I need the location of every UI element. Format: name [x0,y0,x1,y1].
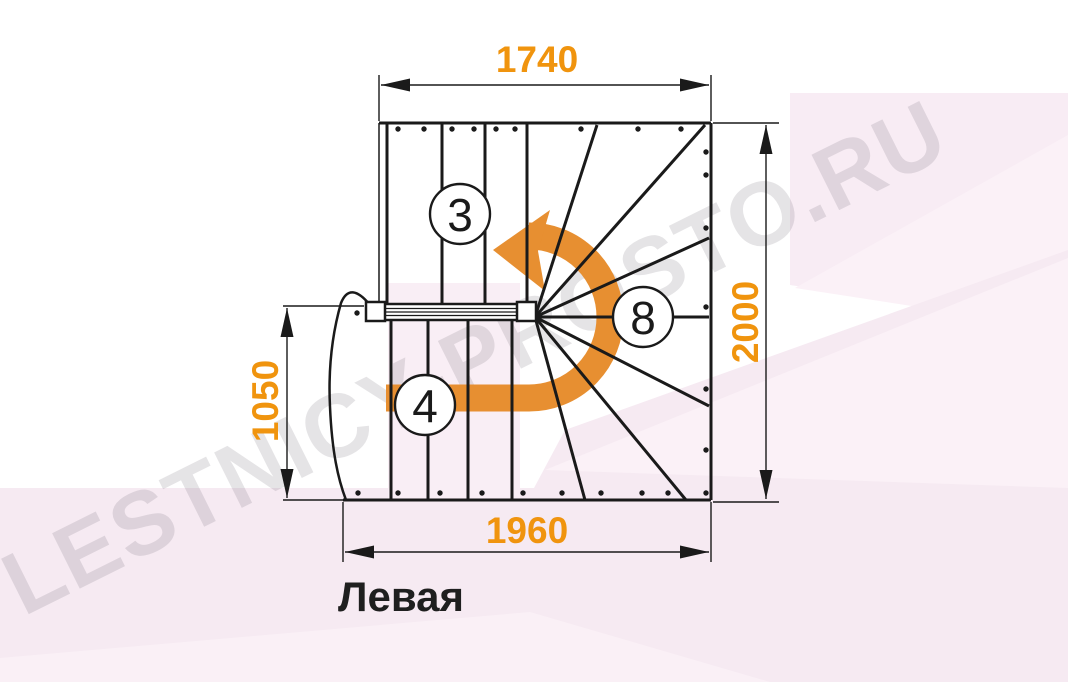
dimension-bottom-value: 1960 [486,510,568,552]
plan-variant-title: Левая [338,573,464,621]
curved-stringer-line [330,292,370,500]
dimension-top-value: 1740 [496,39,578,81]
lower-flight-step-count: 4 [412,379,438,433]
landing-tread [366,302,536,321]
dimension-right-value: 2000 [725,281,767,363]
stair-plan-drawing [0,0,1068,682]
stair-plan-diagram: LESTNICY-PROSTO.RU [0,0,1068,682]
landing-post-left [366,302,385,321]
upper-flight-step-count: 3 [447,188,473,242]
dimension-top [379,75,711,121]
dimension-left [281,306,365,500]
winder-step-count: 8 [630,291,656,345]
landing-post-right [517,302,536,321]
dimension-left-value: 1050 [245,360,287,442]
